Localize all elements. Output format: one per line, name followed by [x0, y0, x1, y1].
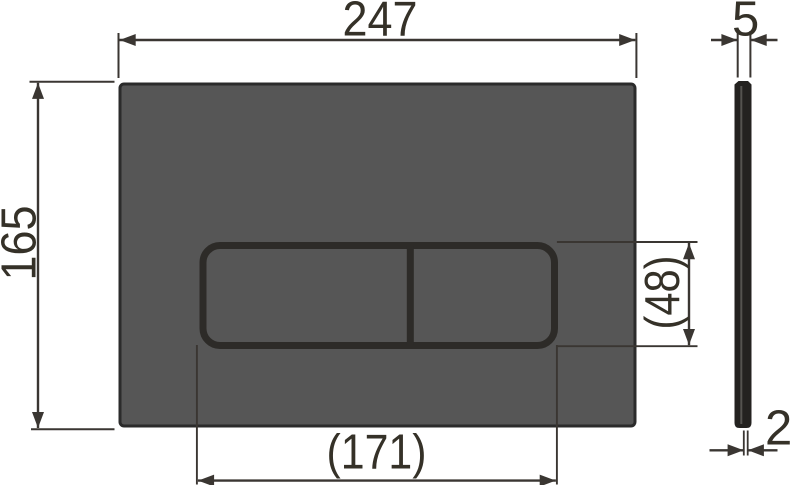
svg-text:5: 5 [732, 0, 759, 47]
svg-text:(171): (171) [327, 426, 427, 480]
svg-text:(48): (48) [636, 256, 690, 330]
svg-text:165: 165 [0, 206, 47, 281]
svg-text:2: 2 [765, 402, 792, 456]
svg-text:247: 247 [343, 0, 418, 47]
